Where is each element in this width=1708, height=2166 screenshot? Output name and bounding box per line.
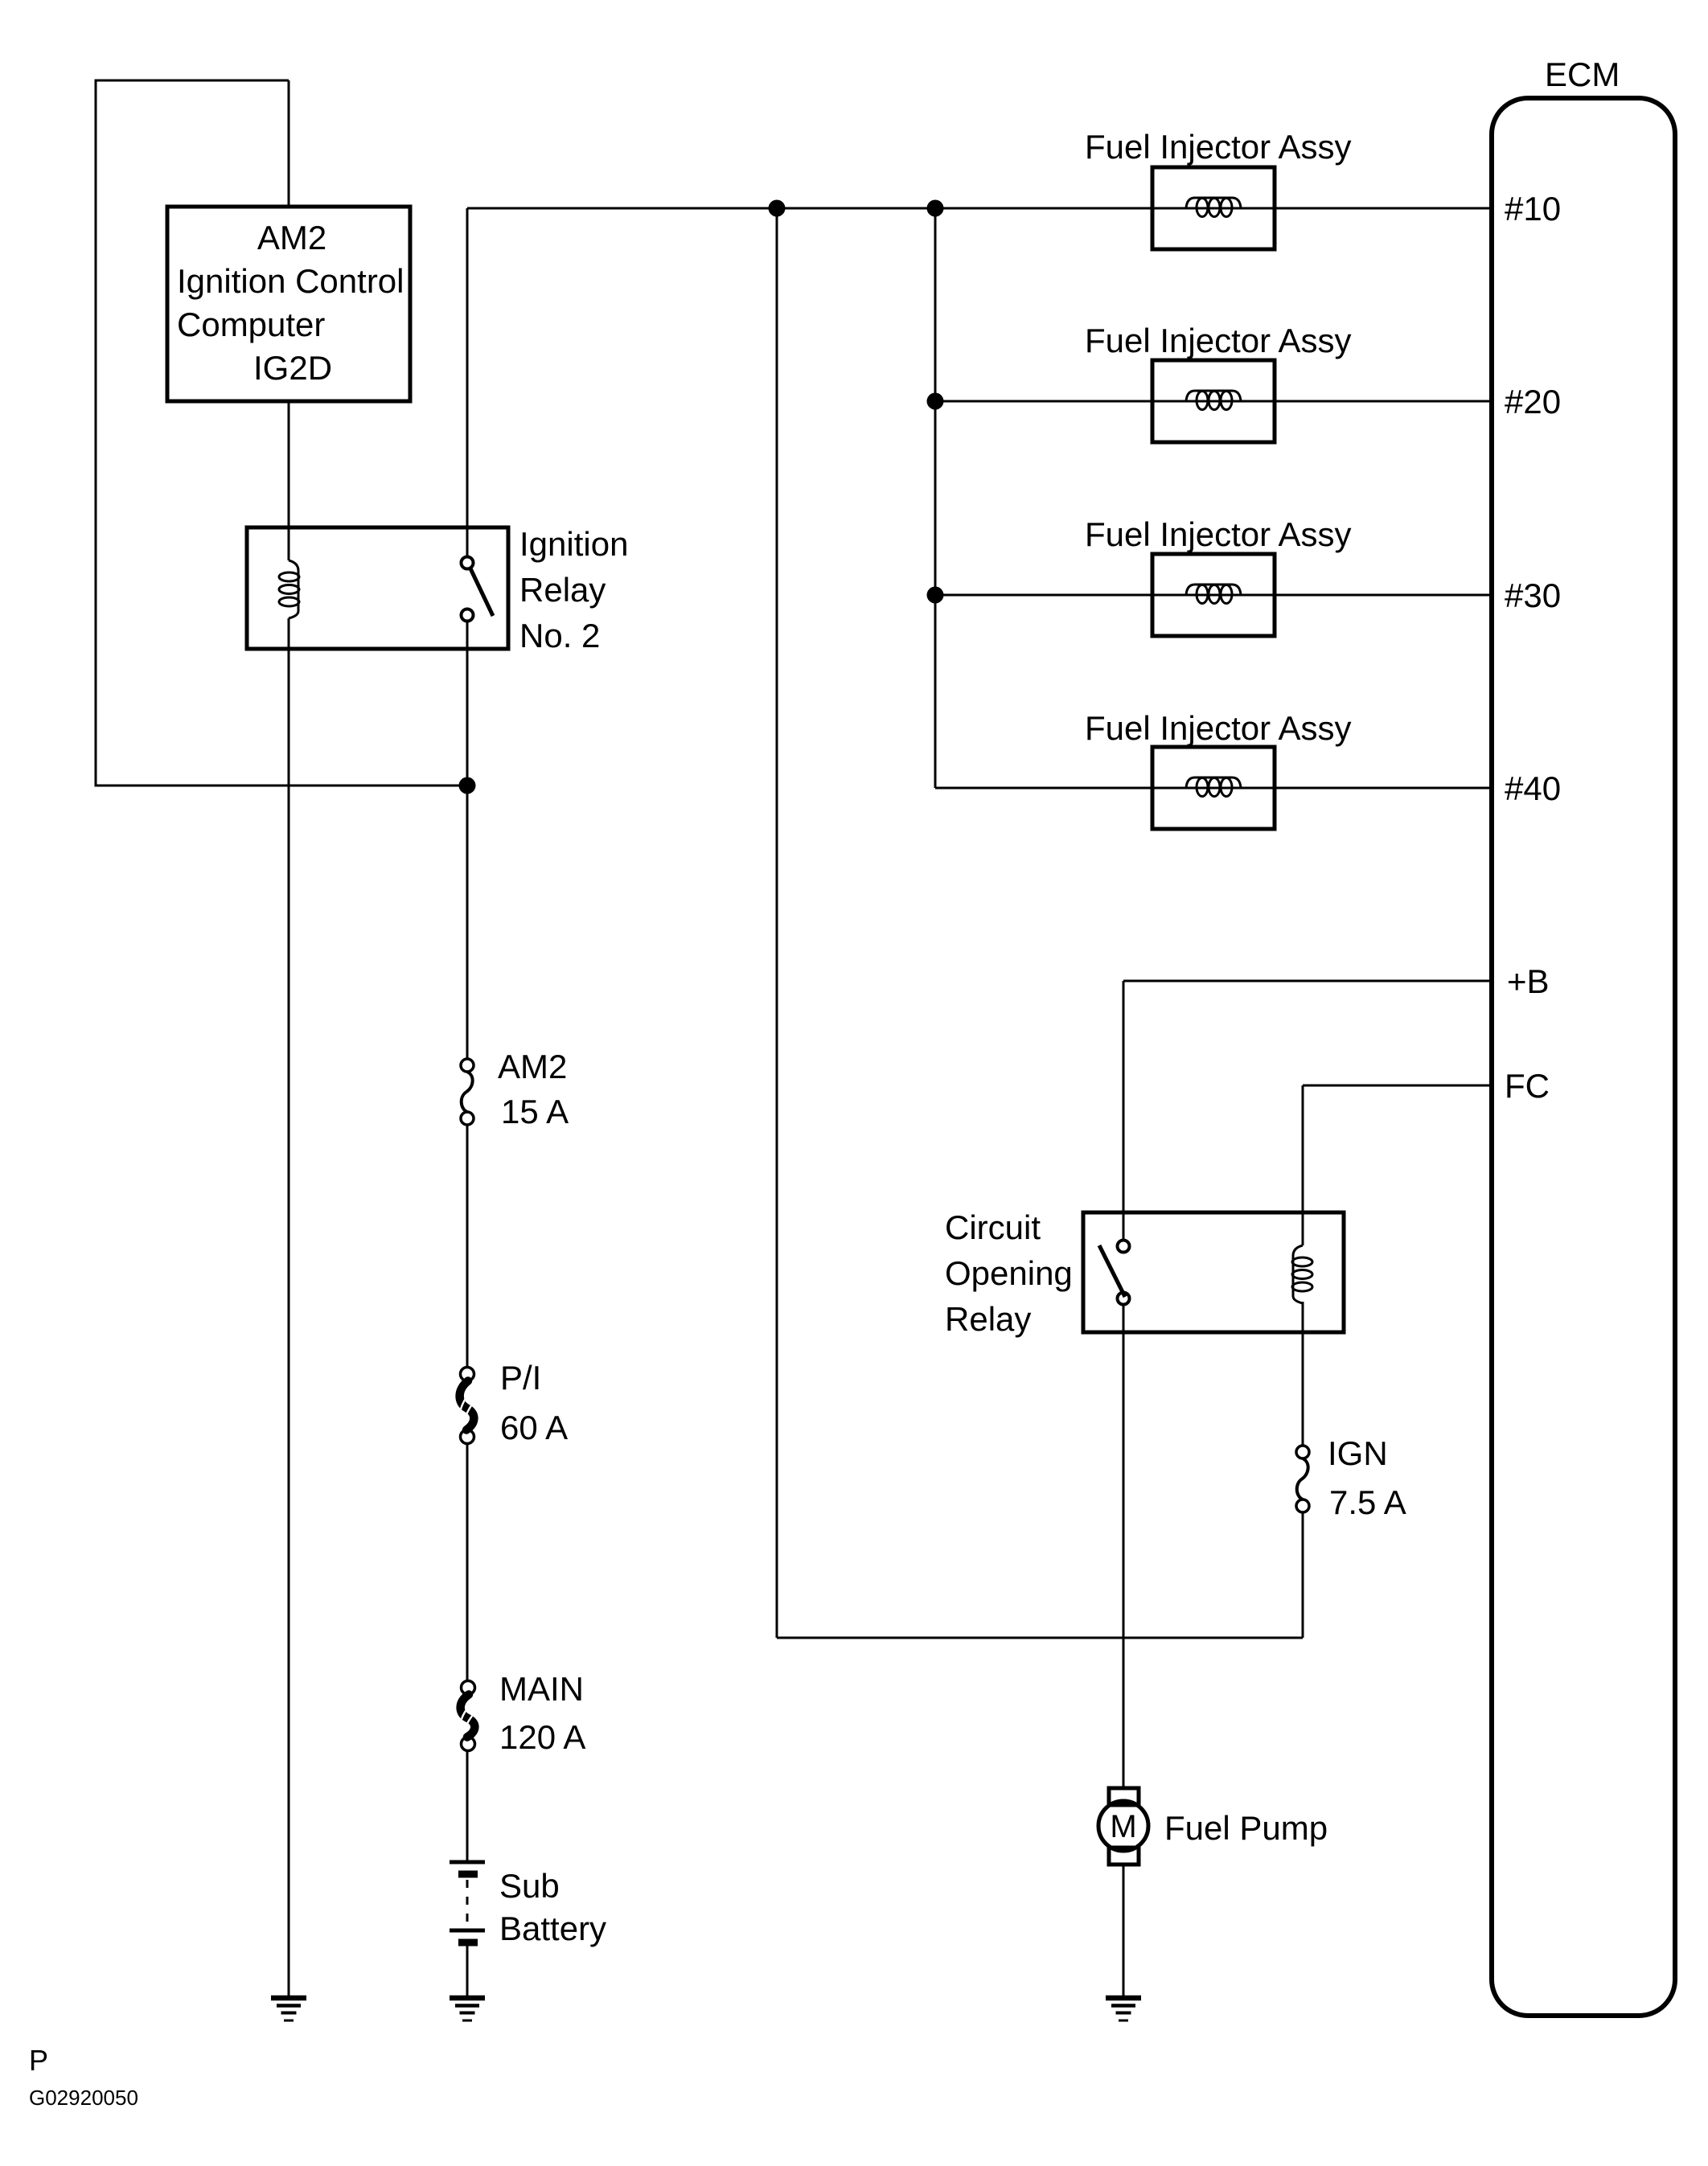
svg-text:#20: #20 bbox=[1505, 383, 1561, 420]
svg-text:Fuel Pump: Fuel Pump bbox=[1164, 1809, 1328, 1847]
svg-text:ECM: ECM bbox=[1545, 55, 1620, 93]
svg-text:Sub: Sub bbox=[499, 1867, 560, 1905]
svg-text:IGN: IGN bbox=[1328, 1434, 1388, 1472]
svg-text:G02920050: G02920050 bbox=[29, 2086, 138, 2110]
svg-text:Relay: Relay bbox=[519, 571, 606, 609]
svg-text:Fuel Injector Assy: Fuel Injector Assy bbox=[1085, 515, 1351, 553]
svg-text:Opening: Opening bbox=[945, 1254, 1073, 1292]
svg-text:Computer: Computer bbox=[177, 306, 325, 343]
svg-text:Ignition Control: Ignition Control bbox=[177, 262, 404, 300]
svg-text:120 A: 120 A bbox=[499, 1718, 585, 1756]
svg-text:+B: +B bbox=[1507, 962, 1550, 1000]
svg-text:7.5 A: 7.5 A bbox=[1329, 1483, 1406, 1521]
svg-text:Fuel Injector Assy: Fuel Injector Assy bbox=[1085, 322, 1351, 359]
svg-text:Circuit: Circuit bbox=[945, 1208, 1041, 1246]
svg-text:15 A: 15 A bbox=[501, 1093, 569, 1130]
svg-text:Battery: Battery bbox=[499, 1910, 606, 1947]
svg-text:AM2: AM2 bbox=[257, 219, 326, 256]
svg-text:Fuel Injector Assy: Fuel Injector Assy bbox=[1085, 709, 1351, 747]
svg-text:AM2: AM2 bbox=[498, 1048, 567, 1085]
svg-text:No. 2: No. 2 bbox=[519, 617, 600, 654]
svg-text:#30: #30 bbox=[1505, 576, 1561, 614]
svg-text:60 A: 60 A bbox=[500, 1409, 568, 1446]
svg-text:Ignition: Ignition bbox=[519, 525, 628, 563]
svg-text:M: M bbox=[1110, 1809, 1136, 1844]
svg-text:#40: #40 bbox=[1505, 769, 1561, 807]
svg-text:Fuel Injector Assy: Fuel Injector Assy bbox=[1085, 128, 1351, 166]
svg-text:P/I: P/I bbox=[500, 1359, 541, 1397]
svg-text:P: P bbox=[29, 2044, 48, 2077]
svg-text:Relay: Relay bbox=[945, 1300, 1031, 1338]
svg-text:FC: FC bbox=[1505, 1067, 1550, 1105]
svg-text:#10: #10 bbox=[1505, 190, 1561, 228]
svg-text:IG2D: IG2D bbox=[253, 349, 332, 387]
svg-text:MAIN: MAIN bbox=[499, 1670, 584, 1708]
